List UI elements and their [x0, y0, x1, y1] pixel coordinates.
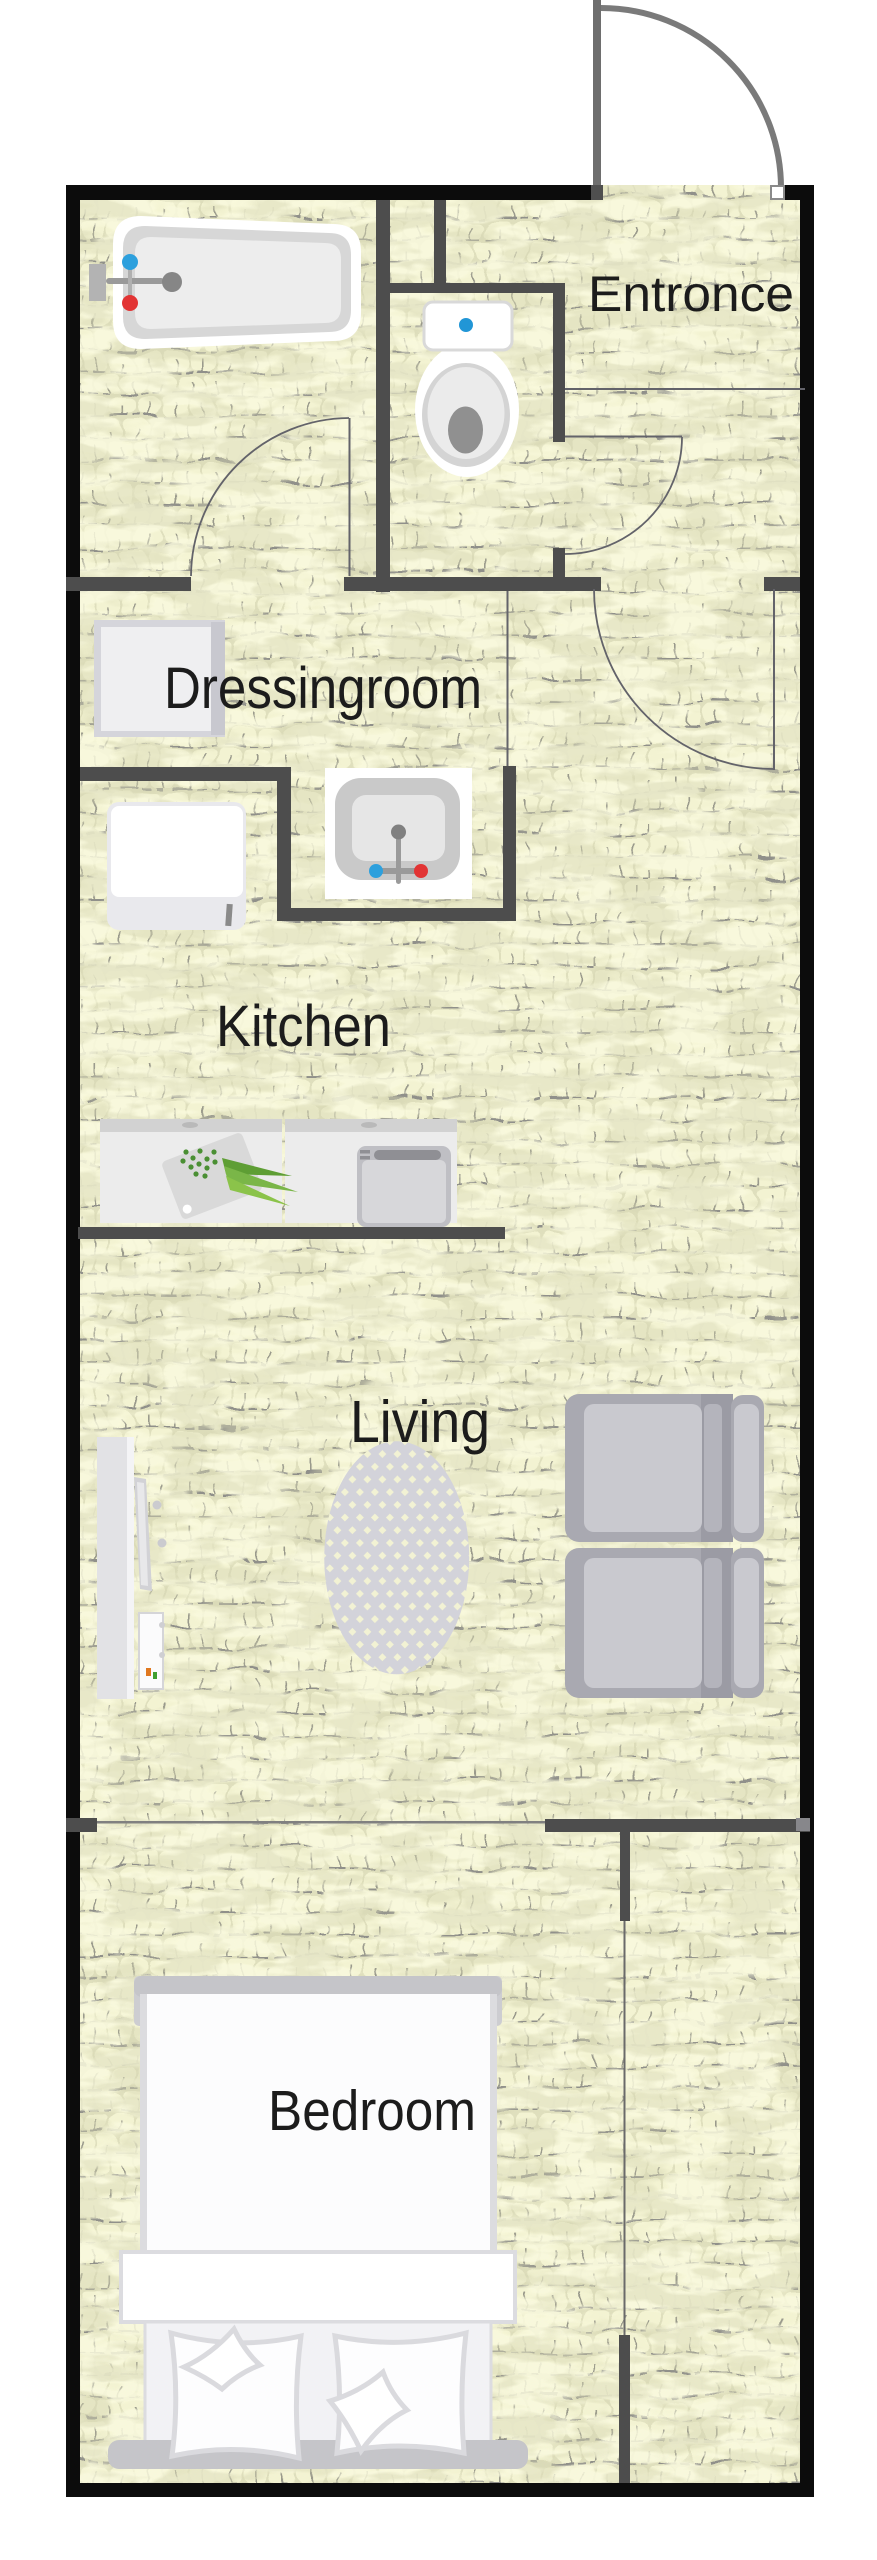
- svg-text:Bedroom: Bedroom: [268, 2079, 476, 2143]
- svg-text:Dressingroom: Dressingroom: [164, 656, 482, 721]
- svg-text:Entronce: Entronce: [588, 266, 794, 322]
- svg-text:Living: Living: [350, 1389, 490, 1455]
- svg-text:Kitchen: Kitchen: [216, 994, 391, 1059]
